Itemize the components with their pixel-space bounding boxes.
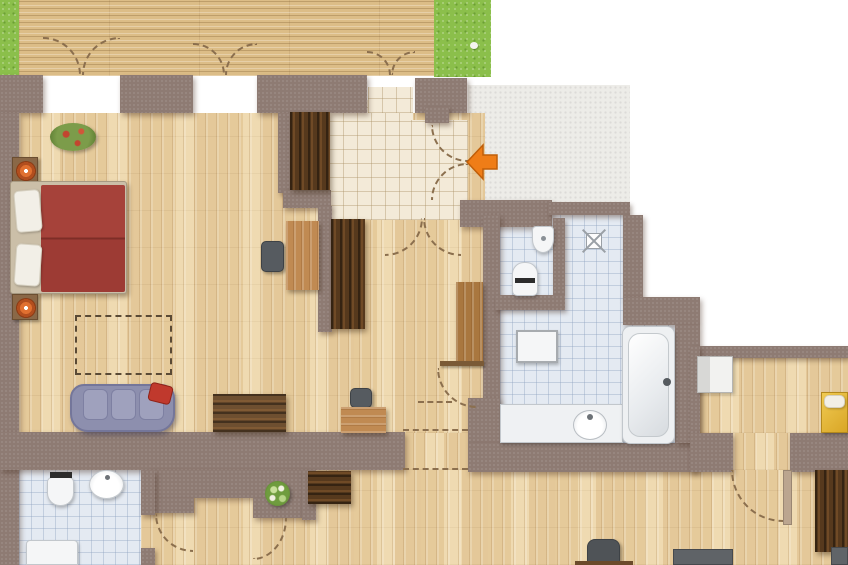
desk-chair-1 [261,241,284,272]
passage-line-top [403,429,468,431]
plant-bedroom [50,123,96,151]
wardrobe-right [815,470,848,552]
cabinet-corridor [456,282,483,361]
bed-pillow-2 [14,243,43,287]
wardrobe-bottom [308,471,351,504]
bed-right [821,392,848,433]
wall-bath-bottom [468,443,698,472]
desk-1 [286,221,319,290]
wall-small-bath-right-b [141,548,155,565]
wall-wc-divider [553,218,565,295]
sink-small [89,470,124,499]
floor-passage-1 [403,433,469,470]
bathtub [622,326,675,444]
washing-machine [516,330,558,363]
lamp-icon [16,298,36,318]
bed-duvet [41,185,125,292]
shelf-edge [440,361,484,366]
wall-top-3 [257,75,367,113]
wall-small-bath-right-a [141,470,155,515]
wall-wc-bottom [495,295,565,310]
passage-line-upper [418,401,452,403]
bathtub-basin [628,333,669,437]
wall-bottom-right-2 [790,433,848,472]
bed [10,181,127,294]
wardrobe-corridor [331,219,365,329]
entrance-arrow [466,141,498,183]
faucet-icon [105,475,110,480]
wall-lower-jamb-1 [150,498,194,513]
wall-tub-niche-top [623,297,700,325]
wardrobe-hall [290,112,330,190]
bench-gray [673,549,733,565]
door-leaf [783,470,792,525]
lawn-patch [434,0,491,77]
nightstand-2 [12,294,38,320]
lawn-flower [470,42,478,49]
bed-pillow-1 [13,189,43,233]
wall-top-2 [120,75,193,113]
toilet-main [512,262,538,296]
wall-shower-right [623,215,643,300]
floor-plan [0,0,848,565]
toilet-small [47,477,74,506]
wall-top-1 [0,75,43,113]
bed-right-pillow [824,395,845,408]
sofa-cushion [83,389,108,420]
toilet-tank-bar [50,472,72,478]
corner-sink [532,226,554,253]
wall-hall-s2 [318,206,332,332]
table-edge [575,561,633,565]
wall-bath-left [483,215,500,405]
faucet-icon [541,236,546,241]
plant-corridor [265,481,290,506]
faucet-icon [663,378,671,386]
nightstand-1 [12,157,38,183]
vanity-counter [500,404,623,443]
wall-top-4b [425,107,449,123]
hall-floor-top [368,87,413,113]
shower-drain [586,233,602,249]
desk-chair-2 [350,388,372,408]
sofa-cushion [111,389,136,420]
wall-hall-se [460,200,552,227]
floor-passage-2 [733,433,790,470]
wall-bottom-right-1 [690,433,733,472]
toilet-seat-bar [515,278,535,283]
hall-floor [329,100,413,220]
faucet-icon [587,414,593,420]
armchair-corner [831,547,848,565]
passage-line-bottom [403,468,468,470]
wall-main-bottom [0,432,405,470]
lawn-strip [0,0,19,76]
wall-bath-top [548,202,630,215]
shower-tray-small [26,540,78,565]
right-room-fixture [697,356,733,393]
wall-hall-left [278,113,290,193]
arrow-left-icon [466,141,498,183]
sofa [70,384,175,432]
desk-2 [341,407,386,433]
lamp-icon [16,161,36,181]
sideboard [213,394,286,432]
rug-outline [75,315,172,375]
